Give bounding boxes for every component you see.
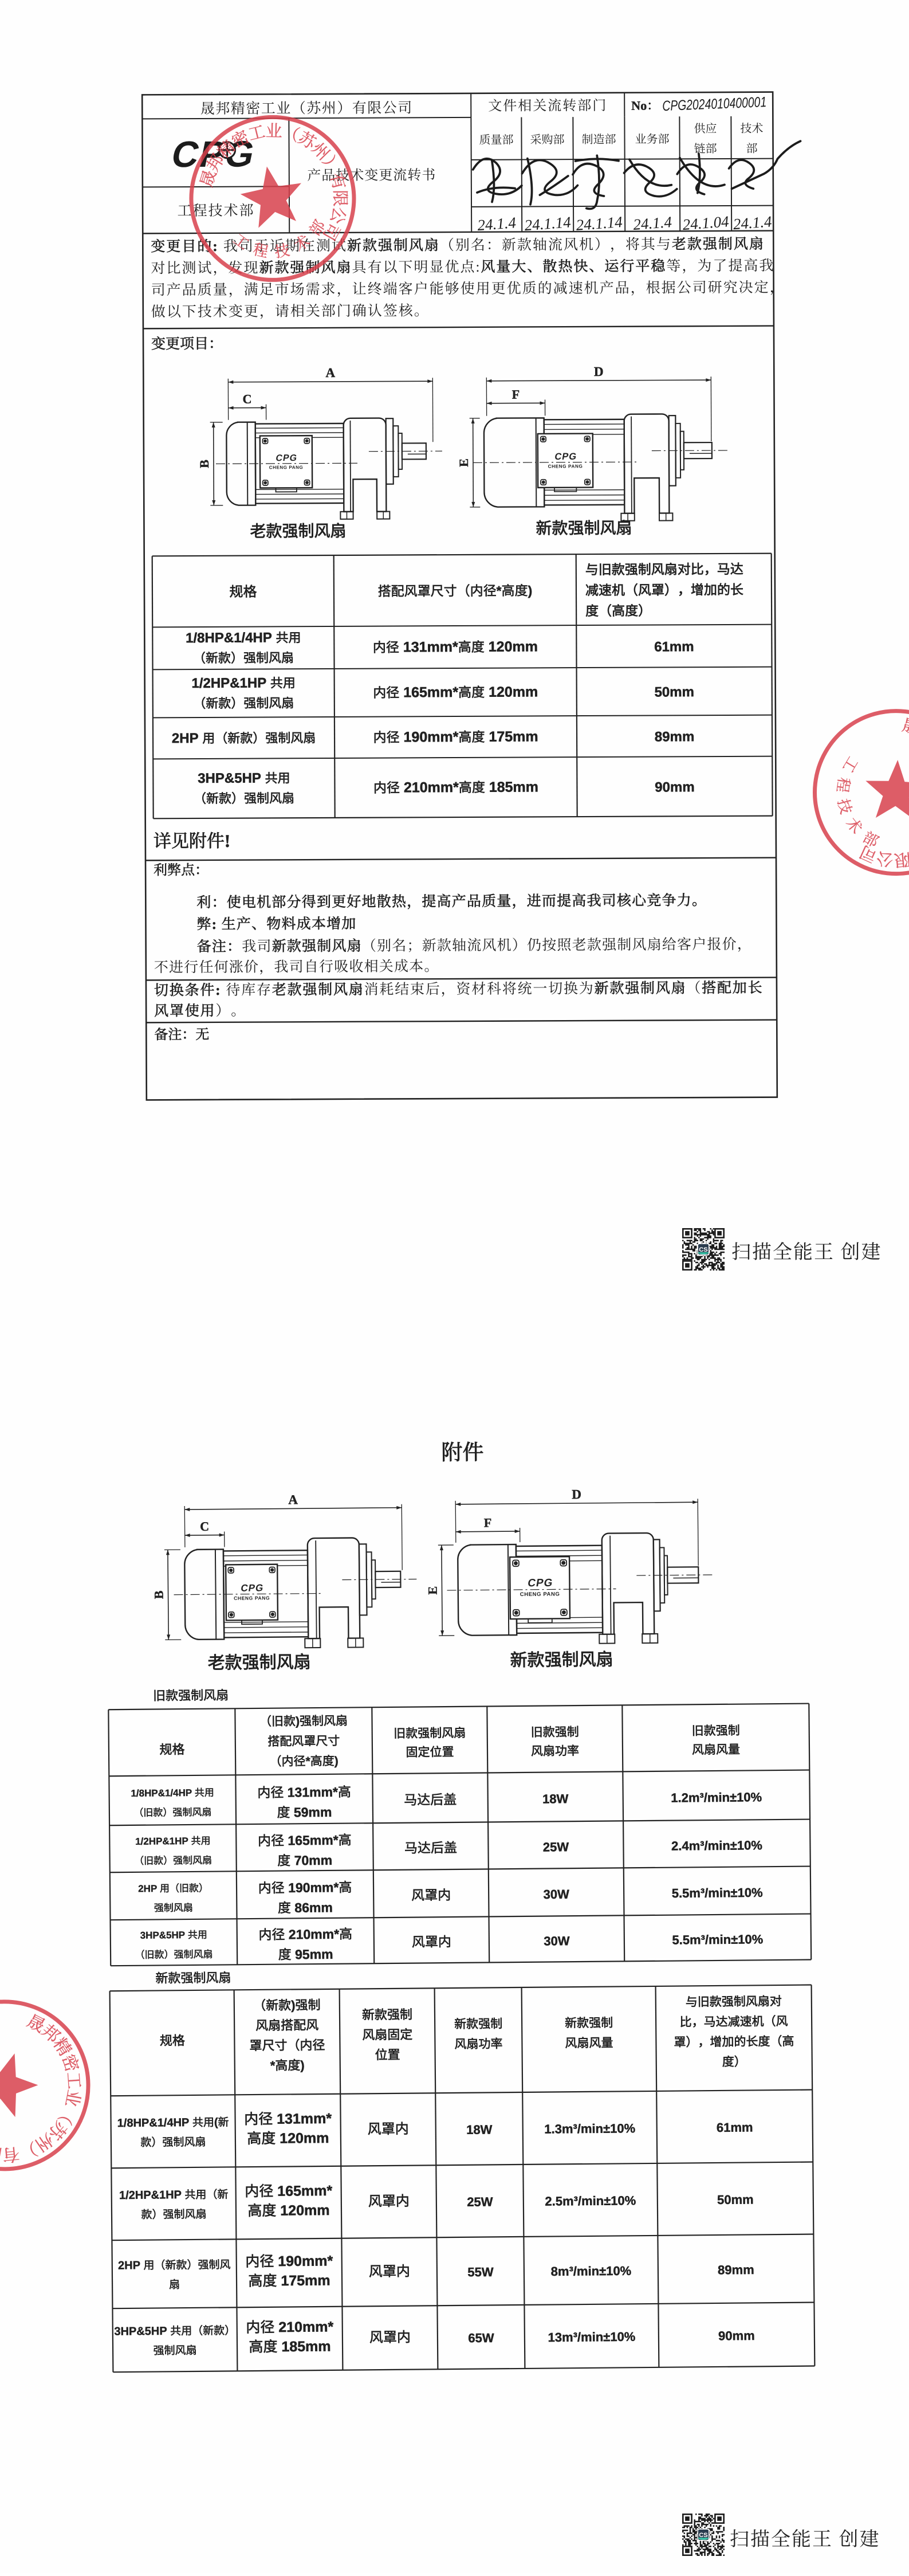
svg-text:CS: CS: [699, 2532, 708, 2539]
svg-text:5.5m³/min±10%: 5.5m³/min±10%: [672, 1885, 763, 1900]
svg-text:2.4m³/min±10%: 2.4m³/min±10%: [671, 1838, 762, 1853]
svg-text:25W: 25W: [543, 1840, 569, 1854]
svg-text:C: C: [243, 392, 252, 406]
svg-text:A: A: [325, 366, 335, 380]
svg-text:1/2HP&1HP: 1/2HP&1HP: [135, 1836, 191, 1847]
svg-text:131mm*: 131mm*: [284, 1785, 338, 1800]
svg-text:3HP&5HP: 3HP&5HP: [140, 1930, 188, 1941]
svg-text:CS: CS: [699, 1246, 708, 1253]
svg-text:E: E: [425, 1586, 439, 1595]
svg-text:2HP: 2HP: [172, 731, 202, 746]
svg-text:18W: 18W: [466, 2122, 493, 2136]
svg-text:55W: 55W: [467, 2265, 494, 2279]
svg-text:CPG: CPG: [240, 1582, 265, 1593]
svg-text:210mm*: 210mm*: [400, 779, 459, 795]
svg-text:120mm: 120mm: [485, 638, 538, 654]
svg-text:1/8HP&1/4HP: 1/8HP&1/4HP: [186, 630, 276, 646]
svg-text:210mm*: 210mm*: [274, 2319, 333, 2335]
svg-text::: :: [215, 983, 226, 998]
svg-text:1/8HP&1/4HP: 1/8HP&1/4HP: [117, 2116, 192, 2130]
svg-text:E: E: [457, 458, 471, 467]
svg-text:8m³/min±10%: 8m³/min±10%: [551, 2264, 632, 2279]
svg-text:50mm: 50mm: [654, 684, 694, 700]
svg-text:24.1.4: 24.1.4: [733, 213, 773, 233]
svg-text:50mm: 50mm: [717, 2192, 754, 2207]
svg-text:3HP&5HP: 3HP&5HP: [198, 770, 265, 786]
svg-text:A: A: [288, 1492, 298, 1507]
svg-text:3HP&5HP: 3HP&5HP: [114, 2325, 170, 2338]
svg-text:30W: 30W: [544, 1934, 570, 1948]
svg-text:F: F: [512, 387, 520, 402]
svg-text:89mm: 89mm: [655, 729, 694, 744]
svg-text:175mm: 175mm: [485, 728, 538, 744]
svg-text:165mm*: 165mm*: [284, 1833, 339, 1848]
svg-text:190mm*: 190mm*: [274, 2253, 333, 2269]
svg-text:D: D: [594, 364, 604, 379]
svg-text:): ): [296, 1715, 300, 1728]
svg-text:): ): [291, 1998, 296, 2012]
svg-text:18W: 18W: [542, 1791, 569, 1806]
svg-text:No: No: [631, 99, 647, 113]
svg-text:59mm: 59mm: [290, 1805, 332, 1820]
svg-text:CPG: CPG: [554, 451, 578, 462]
svg-text:120mm: 120mm: [276, 2202, 329, 2219]
svg-text:61mm: 61mm: [654, 639, 694, 654]
svg-text:C: C: [200, 1519, 209, 1534]
svg-text:1.3m³/min±10%: 1.3m³/min±10%: [544, 2121, 635, 2136]
svg-text::: :: [213, 239, 223, 254]
svg-text:90mm: 90mm: [655, 779, 694, 795]
svg-text:1/8HP&1/4HP: 1/8HP&1/4HP: [131, 1787, 195, 1799]
svg-text::: :: [475, 260, 481, 275]
svg-text:61mm: 61mm: [717, 2120, 753, 2135]
svg-text:): ): [528, 583, 533, 598]
svg-text:1/2HP&1HP: 1/2HP&1HP: [191, 675, 270, 691]
svg-text:131mm*: 131mm*: [273, 2111, 332, 2127]
svg-text:CHENG PANG: CHENG PANG: [234, 1595, 270, 1601]
svg-text:165mm*: 165mm*: [273, 2183, 332, 2199]
svg-text:185mm: 185mm: [277, 2338, 330, 2355]
svg-text:190mm*: 190mm*: [400, 729, 459, 745]
svg-text:B: B: [197, 460, 211, 468]
svg-text:CPG: CPG: [527, 1577, 554, 1589]
svg-text:2HP: 2HP: [118, 2259, 144, 2272]
svg-text:): ): [300, 2058, 305, 2072]
svg-text:CHENG PANG: CHENG PANG: [548, 464, 583, 469]
svg-text:B: B: [152, 1590, 166, 1599]
svg-text:24.1.4: 24.1.4: [632, 213, 672, 233]
svg-text:5.5m³/min±10%: 5.5m³/min±10%: [672, 1932, 763, 1947]
svg-text:24.1.14: 24.1.14: [524, 213, 572, 234]
svg-text:131mm*: 131mm*: [399, 639, 458, 655]
svg-text:CPG: CPG: [275, 453, 298, 463]
svg-text:86mm: 86mm: [291, 1900, 333, 1915]
svg-text:*: *: [305, 1755, 310, 1768]
svg-text:2HP: 2HP: [138, 1883, 160, 1894]
svg-text:120mm: 120mm: [485, 684, 538, 700]
svg-text:175mm: 175mm: [277, 2272, 330, 2289]
svg-text:120mm: 120mm: [276, 2130, 329, 2147]
svg-text:95mm: 95mm: [292, 1947, 333, 1962]
svg-text:89mm: 89mm: [718, 2263, 754, 2277]
svg-text:*: *: [497, 583, 502, 598]
svg-text:190mm*: 190mm*: [285, 1880, 339, 1895]
svg-text:30W: 30W: [543, 1887, 569, 1901]
svg-text:210mm*: 210mm*: [285, 1927, 339, 1942]
svg-text:F: F: [484, 1515, 492, 1530]
svg-text:D: D: [572, 1487, 581, 1501]
svg-text::: :: [212, 917, 222, 932]
svg-text:24.1.04: 24.1.04: [682, 213, 730, 233]
svg-text:CHENG PANG: CHENG PANG: [520, 1591, 560, 1598]
svg-text:90mm: 90mm: [718, 2328, 755, 2343]
svg-text:185mm: 185mm: [485, 779, 538, 795]
svg-text:(: (: [214, 2116, 218, 2129]
svg-text:): ): [335, 1755, 339, 1768]
svg-text:13m³/min±10%: 13m³/min±10%: [548, 2330, 636, 2344]
svg-text:CHENG PANG: CHENG PANG: [269, 465, 304, 470]
svg-text:24.1.14: 24.1.14: [576, 213, 623, 234]
svg-text:70mm: 70mm: [290, 1853, 332, 1868]
svg-text:*: *: [270, 2059, 276, 2073]
svg-text:2.5m³/min±10%: 2.5m³/min±10%: [545, 2193, 636, 2208]
svg-text:25W: 25W: [467, 2194, 493, 2209]
svg-text:65W: 65W: [468, 2331, 494, 2345]
svg-text:1.2m³/min±10%: 1.2m³/min±10%: [671, 1790, 762, 1805]
svg-text:!: !: [225, 831, 230, 851]
svg-text:24.1.4: 24.1.4: [477, 214, 517, 234]
svg-text:165mm*: 165mm*: [399, 684, 458, 700]
svg-text:1/2HP&1HP: 1/2HP&1HP: [119, 2189, 185, 2202]
